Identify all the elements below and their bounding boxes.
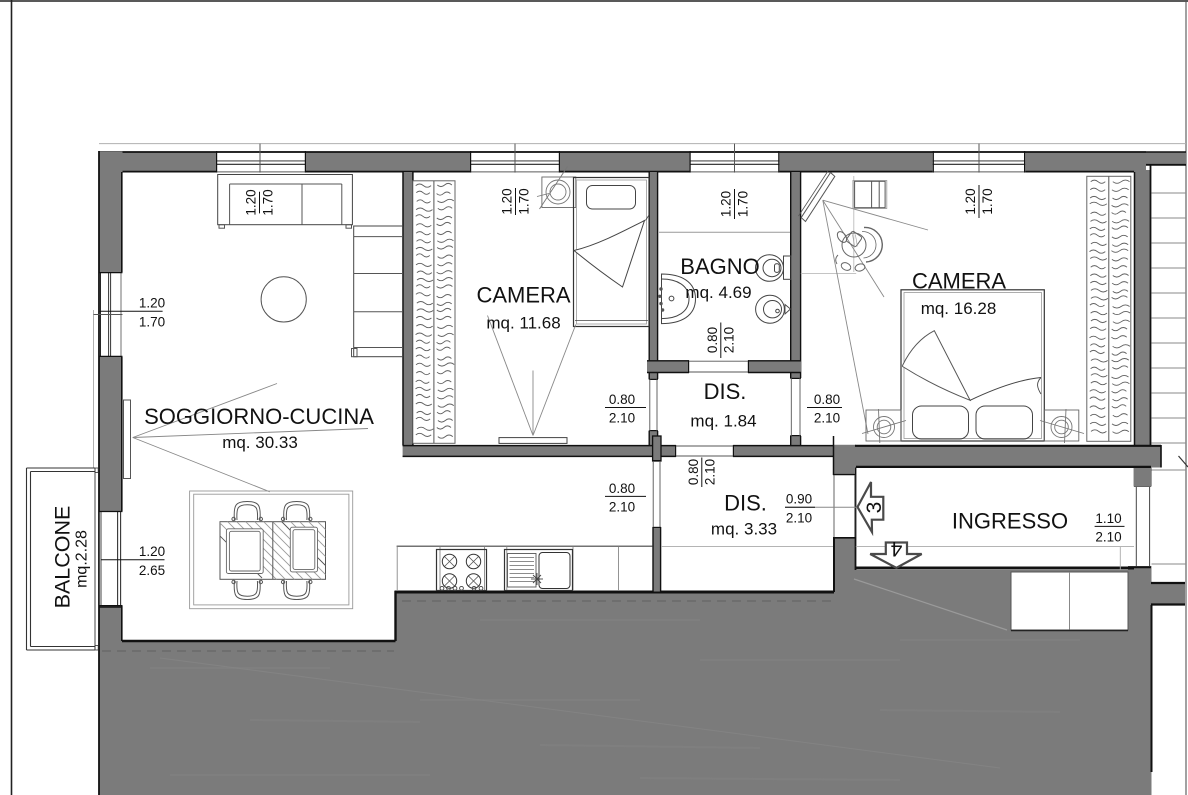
svg-text:1.20: 1.20 bbox=[244, 189, 259, 215]
svg-text:mq. 30.33: mq. 30.33 bbox=[222, 433, 298, 452]
svg-text:0.80: 0.80 bbox=[705, 327, 720, 353]
svg-text:2.10: 2.10 bbox=[609, 411, 635, 426]
svg-text:mq.2.28: mq.2.28 bbox=[74, 530, 91, 588]
svg-text:CAMERA: CAMERA bbox=[476, 283, 570, 308]
svg-text:SOGGIORNO-CUCINA: SOGGIORNO-CUCINA bbox=[144, 404, 374, 429]
svg-text:1.70: 1.70 bbox=[736, 191, 751, 217]
svg-text:INGRESSO: INGRESSO bbox=[952, 509, 1068, 534]
svg-text:1.20: 1.20 bbox=[500, 188, 515, 214]
svg-text:1.20: 1.20 bbox=[139, 296, 165, 311]
svg-text:0.90: 0.90 bbox=[786, 492, 812, 507]
svg-text:mq. 4.69: mq. 4.69 bbox=[685, 283, 751, 302]
svg-text:BALCONE: BALCONE bbox=[51, 506, 75, 609]
svg-text:0.80: 0.80 bbox=[686, 459, 701, 485]
svg-text:1.10: 1.10 bbox=[1095, 511, 1121, 526]
svg-text:1.20: 1.20 bbox=[719, 191, 734, 217]
svg-text:DIS.: DIS. bbox=[704, 379, 747, 404]
svg-text:2.10: 2.10 bbox=[609, 500, 635, 515]
svg-text:DIS.: DIS. bbox=[724, 491, 767, 516]
svg-text:2.10: 2.10 bbox=[703, 459, 718, 485]
svg-text:2.10: 2.10 bbox=[1095, 530, 1121, 545]
svg-text:mq. 16.28: mq. 16.28 bbox=[921, 299, 997, 318]
svg-text:1.70: 1.70 bbox=[980, 188, 995, 214]
svg-text:2.10: 2.10 bbox=[722, 327, 737, 353]
svg-text:mq. 3.33: mq. 3.33 bbox=[711, 520, 777, 539]
svg-text:4: 4 bbox=[890, 537, 902, 560]
svg-text:0.80: 0.80 bbox=[609, 481, 635, 496]
svg-text:3: 3 bbox=[863, 502, 886, 514]
svg-text:mq. 1.84: mq. 1.84 bbox=[690, 412, 756, 431]
svg-text:2.10: 2.10 bbox=[814, 411, 840, 426]
svg-text:1.70: 1.70 bbox=[139, 315, 165, 330]
svg-text:1.20: 1.20 bbox=[139, 544, 165, 559]
svg-text:mq. 11.68: mq. 11.68 bbox=[486, 314, 560, 333]
svg-text:2.10: 2.10 bbox=[786, 511, 812, 526]
svg-text:1.20: 1.20 bbox=[963, 188, 978, 214]
svg-text:0.80: 0.80 bbox=[814, 392, 840, 407]
svg-text:2.65: 2.65 bbox=[139, 563, 165, 578]
svg-text:BAGNO: BAGNO bbox=[680, 254, 759, 279]
svg-text:1.70: 1.70 bbox=[261, 189, 276, 215]
svg-text:CAMERA: CAMERA bbox=[912, 269, 1006, 294]
svg-text:0.80: 0.80 bbox=[609, 392, 635, 407]
svg-text:1.70: 1.70 bbox=[517, 188, 532, 214]
